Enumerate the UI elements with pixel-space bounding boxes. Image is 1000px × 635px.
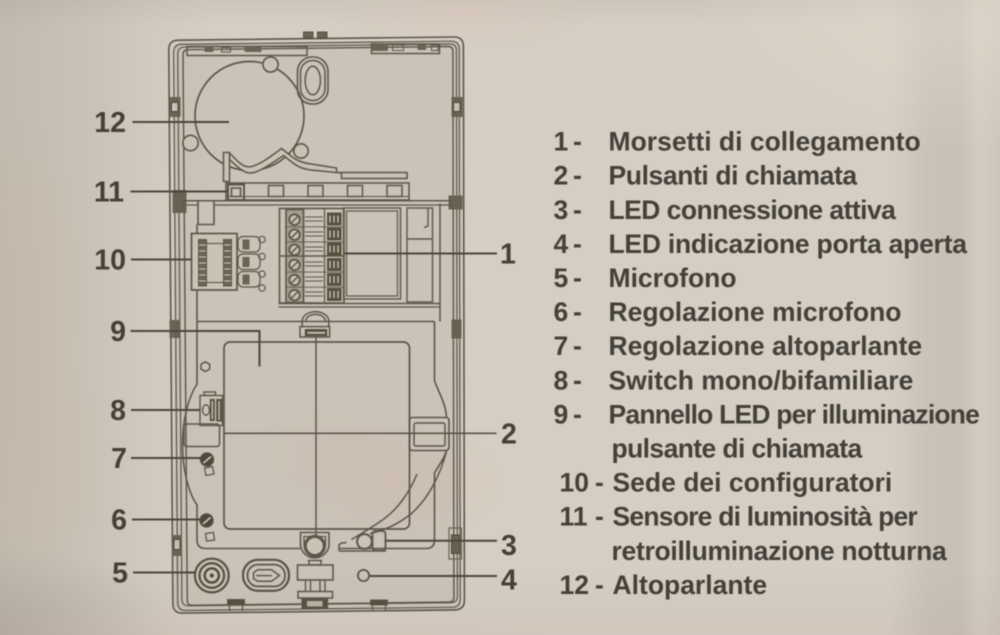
svg-text:5: 5 <box>112 558 128 590</box>
svg-text:3: 3 <box>554 195 569 225</box>
svg-text:-: - <box>573 127 582 157</box>
svg-text:Sede dei configuratori: Sede dei configuratori <box>613 468 893 498</box>
svg-text:Switch mono/bifamiliare: Switch mono/bifamiliare <box>609 365 914 395</box>
svg-text:-: - <box>573 263 582 293</box>
svg-text:Pulsanti di chiamata: Pulsanti di chiamata <box>609 161 858 191</box>
svg-text:Microfono: Microfono <box>609 263 737 293</box>
svg-text:5: 5 <box>554 263 569 293</box>
svg-text:1: 1 <box>554 127 569 157</box>
svg-text:Pannello LED per illuminazione: Pannello LED per illuminazione <box>609 399 980 429</box>
svg-text:12: 12 <box>560 570 589 600</box>
svg-text:pulsante di chiamata: pulsante di chiamata <box>612 434 863 464</box>
svg-text:-: - <box>595 502 604 532</box>
svg-text:1: 1 <box>500 239 516 271</box>
svg-text:Sensore di luminosità per: Sensore di luminosità per <box>613 502 918 532</box>
svg-text:10: 10 <box>94 245 126 277</box>
svg-text:4: 4 <box>501 565 517 597</box>
svg-text:-: - <box>573 229 582 259</box>
svg-text:-: - <box>573 297 582 327</box>
svg-text:10: 10 <box>560 468 589 498</box>
svg-text:7: 7 <box>111 443 127 475</box>
svg-text:9: 9 <box>110 316 126 348</box>
svg-text:6: 6 <box>111 505 127 537</box>
svg-text:8: 8 <box>110 395 126 427</box>
svg-text:LED connessione attiva: LED connessione attiva <box>609 195 897 225</box>
svg-text:3: 3 <box>501 530 517 562</box>
svg-text:-: - <box>595 468 604 498</box>
svg-text:-: - <box>573 365 582 395</box>
svg-text:9: 9 <box>554 399 569 429</box>
svg-text:4: 4 <box>554 229 569 259</box>
svg-text:6: 6 <box>554 297 569 327</box>
svg-text:12: 12 <box>94 107 126 139</box>
svg-text:-: - <box>595 570 604 600</box>
svg-text:-: - <box>573 195 582 225</box>
svg-text:-: - <box>573 399 582 429</box>
svg-text:Regolazione microfono: Regolazione microfono <box>609 297 902 327</box>
svg-text:8: 8 <box>554 365 569 395</box>
svg-text:11: 11 <box>560 502 588 532</box>
svg-text:Altoparlante: Altoparlante <box>613 570 768 600</box>
svg-text:Regolazione altoparlante: Regolazione altoparlante <box>609 331 923 361</box>
svg-text:Morsetti di collegamento: Morsetti di collegamento <box>609 127 921 157</box>
svg-text:2: 2 <box>501 419 517 451</box>
svg-text:-: - <box>573 161 582 191</box>
svg-text:7: 7 <box>554 331 569 361</box>
svg-text:-: - <box>573 331 582 361</box>
svg-text:2: 2 <box>554 161 569 191</box>
svg-text:11: 11 <box>94 177 124 209</box>
svg-text:retroilluminazione notturna: retroilluminazione notturna <box>612 536 948 566</box>
svg-text:LED indicazione porta aperta: LED indicazione porta aperta <box>609 229 968 259</box>
